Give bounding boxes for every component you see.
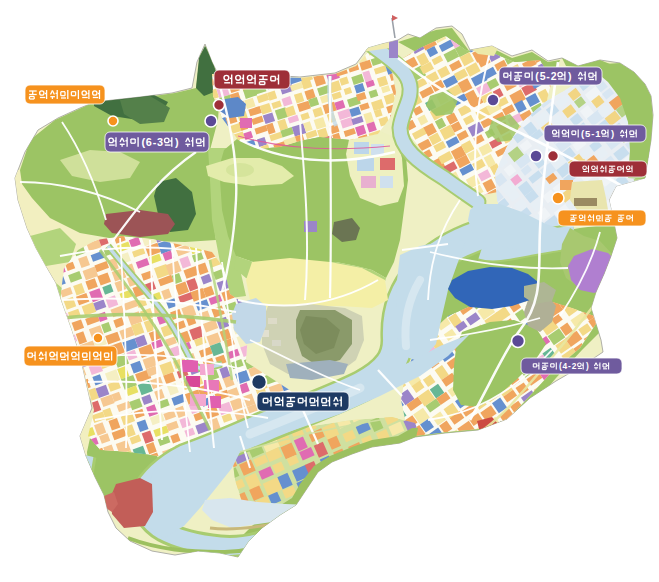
svg-text:(: ( xyxy=(141,136,145,148)
svg-text:6: 6 xyxy=(146,136,152,148)
svg-text:5: 5 xyxy=(540,70,546,82)
svg-text:1: 1 xyxy=(595,128,601,139)
svg-text:3: 3 xyxy=(157,136,163,148)
svg-text:2: 2 xyxy=(572,361,577,371)
svg-text:2: 2 xyxy=(551,70,557,82)
svg-text:4: 4 xyxy=(563,361,568,371)
svg-text:): ) xyxy=(611,128,614,139)
svg-text:): ) xyxy=(568,70,572,82)
svg-text:-: - xyxy=(568,361,571,371)
svg-text:-: - xyxy=(591,128,594,139)
svg-text:5: 5 xyxy=(585,128,591,139)
svg-text:(: ( xyxy=(559,361,562,371)
svg-text:): ) xyxy=(175,136,179,148)
svg-text:): ) xyxy=(586,361,589,371)
